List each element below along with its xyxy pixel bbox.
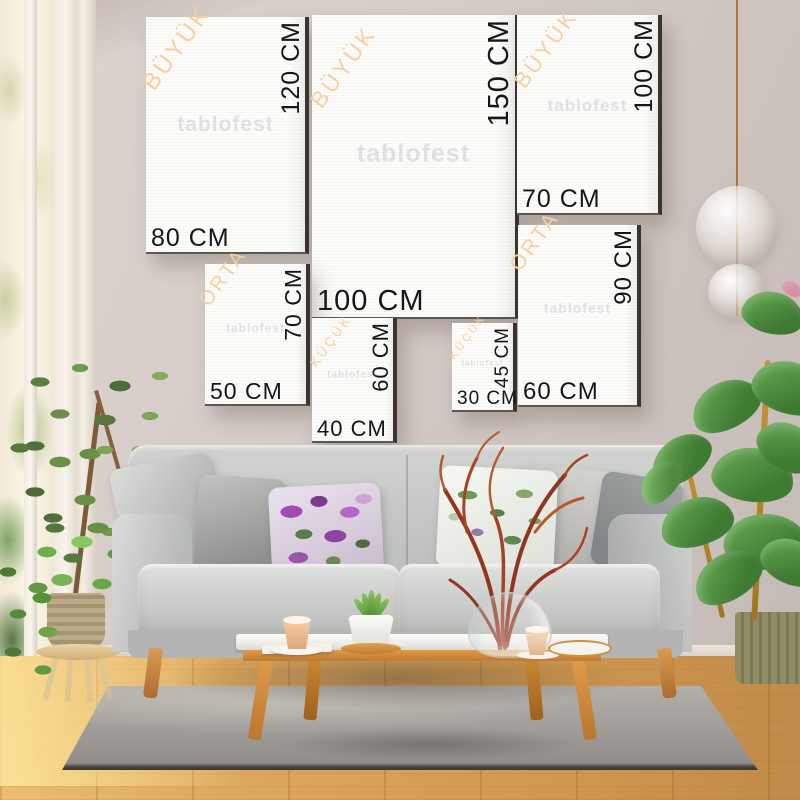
width-label: 100 CM — [317, 286, 425, 316]
pillow-purple-floral — [268, 482, 385, 577]
watermark: tablofest — [177, 113, 274, 137]
canvas-frame-80x120: BÜYÜK 120 CM tablofest 80 CM — [146, 17, 309, 254]
width-label: 30 CM — [457, 389, 518, 409]
succulent-pot-base — [341, 643, 401, 654]
cup-rim — [525, 626, 549, 633]
width-label: 60 CM — [523, 379, 599, 404]
width-label: 50 CM — [210, 379, 283, 403]
width-label: 40 CM — [317, 417, 387, 440]
wooden-tray — [548, 640, 612, 657]
canvas-frame-50x70: ORTA 70 CM tablofest 50 CM — [205, 264, 310, 406]
height-label: 120 CM — [279, 21, 304, 115]
height-label: 70 CM — [282, 268, 305, 341]
height-label: 60 CM — [370, 322, 392, 392]
watermark: tablofest — [357, 139, 470, 168]
monstera-leaf — [745, 351, 800, 426]
size-category-label: KÜÇÜK — [307, 312, 353, 369]
height-label: 100 CM — [632, 19, 657, 113]
living-room-size-guide: BÜYÜK 120 CM tablofest 80 CM BÜYÜK 150 C… — [0, 0, 800, 800]
canvas-frame-60x90: ORTA 90 CM tablofest 60 CM — [518, 225, 641, 407]
canvas-frame-30x45: KÜÇÜK 45 CM tablofest 30 CM — [452, 323, 517, 412]
height-label: 45 CM — [493, 327, 512, 388]
width-label: 80 CM — [151, 225, 230, 251]
watermark: tablofest — [548, 96, 628, 116]
width-label: 70 CM — [522, 186, 601, 212]
corner-plant — [0, 552, 83, 697]
height-label: 150 CM — [485, 19, 514, 127]
canvas-frame-70x100: BÜYÜK 100 CM tablofest 70 CM — [517, 15, 662, 215]
height-label: 90 CM — [612, 229, 636, 305]
size-category-label: BÜYÜK — [510, 6, 581, 92]
size-category-label: KÜÇÜK — [448, 312, 488, 362]
watermark: tablofest — [327, 369, 378, 380]
watermark: tablofest — [461, 359, 503, 368]
monstera-pot — [735, 612, 800, 684]
canvas-frame-40x60: KÜÇÜK 60 CM tablofest 40 CM — [312, 318, 397, 443]
watermark: tablofest — [544, 300, 611, 316]
cup-rim — [283, 616, 311, 624]
pendant-glass-globe-large — [696, 186, 778, 270]
canvas-frame-100x150: BÜYÜK 150 CM tablofest 100 CM — [312, 15, 519, 319]
table-shadow — [230, 722, 630, 766]
watermark: tablofest — [226, 321, 285, 335]
size-category-label: BÜYÜK — [306, 22, 380, 112]
size-category-label: ORTA — [196, 245, 251, 310]
